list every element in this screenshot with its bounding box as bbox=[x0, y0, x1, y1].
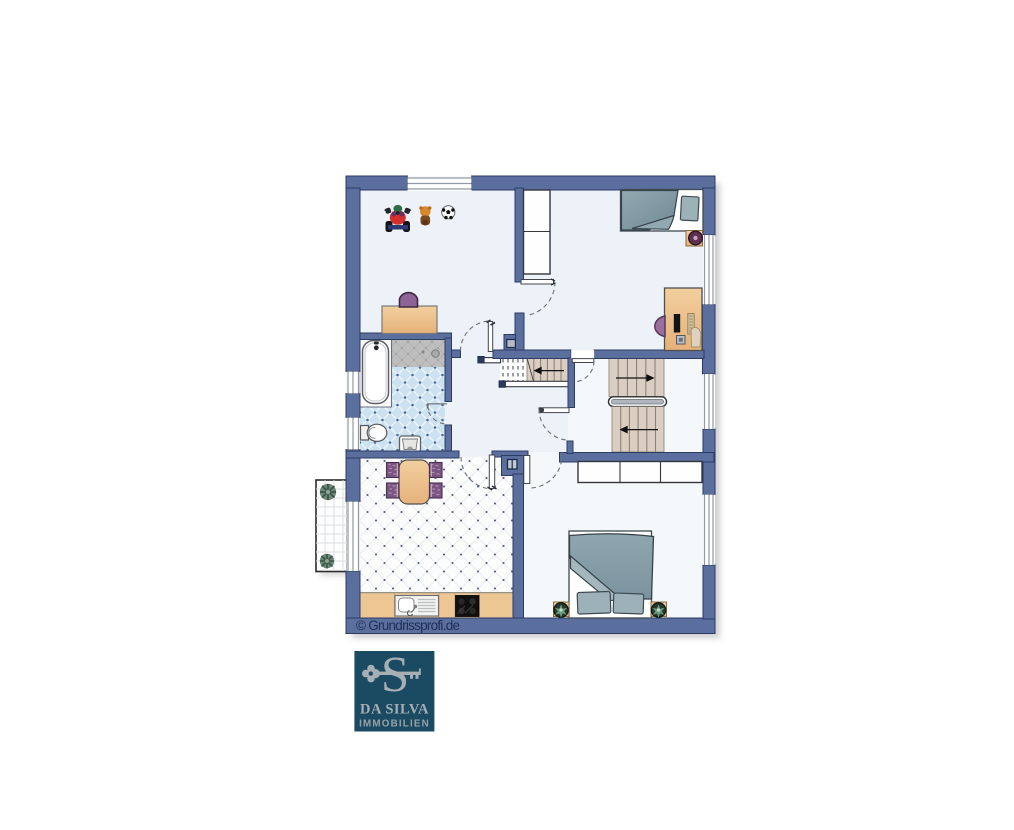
svg-text:© Grundrissprofi.de: © Grundrissprofi.de bbox=[356, 618, 460, 633]
svg-text:DA SILVA: DA SILVA bbox=[360, 702, 429, 718]
svg-text:S: S bbox=[381, 648, 409, 704]
svg-text:IMMOBILIEN: IMMOBILIEN bbox=[359, 719, 430, 730]
